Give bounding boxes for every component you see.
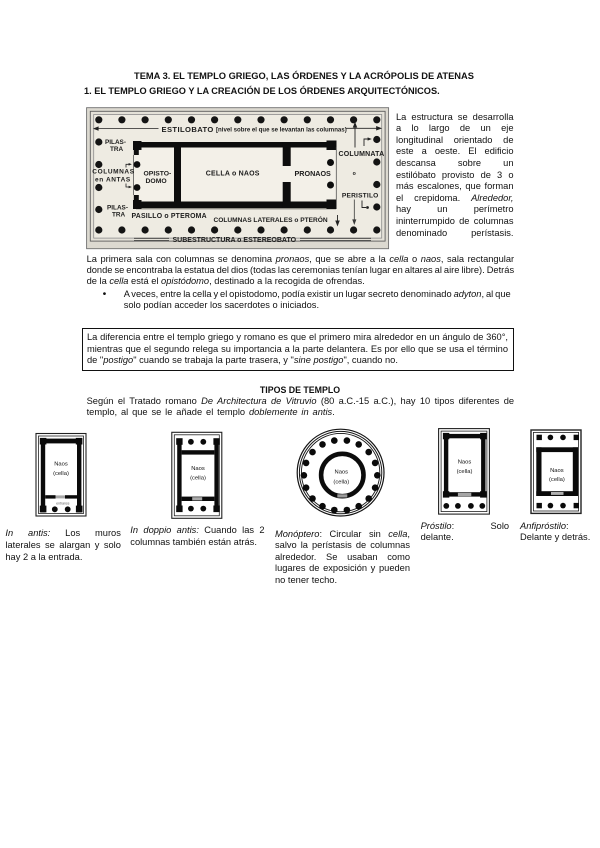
svg-text:PERISTILO: PERISTILO xyxy=(342,192,379,199)
svg-text:Naos: Naos xyxy=(458,459,472,465)
svg-text:PRONAOS: PRONAOS xyxy=(295,169,332,178)
svg-text:[nivel sobre el que se levanta: [nivel sobre el que se levantan las colu… xyxy=(216,127,347,134)
svg-text:o: o xyxy=(353,171,356,177)
svg-text:DOMO: DOMO xyxy=(146,178,167,185)
svg-text:COLUMNAS LATERALES o PTERÓN: COLUMNAS LATERALES o PTERÓN xyxy=(214,215,328,224)
svg-text:Naos: Naos xyxy=(54,462,68,468)
svg-text:SUBESTRUCTURA o ESTEREOBATO: SUBESTRUCTURA o ESTEREOBATO xyxy=(173,237,297,244)
svg-text:CELLA o NAOS: CELLA o NAOS xyxy=(206,170,260,177)
svg-text:OPISTO-: OPISTO- xyxy=(144,171,172,178)
svg-text:(cella): (cella) xyxy=(457,469,473,475)
svg-text:en ANTAS: en ANTAS xyxy=(95,177,131,184)
svg-text:TRA: TRA xyxy=(112,211,126,218)
svg-text:COLUMNAS: COLUMNAS xyxy=(92,169,134,176)
svg-text:(cella): (cella) xyxy=(333,479,349,485)
svg-text:Naos: Naos xyxy=(191,466,205,472)
svg-text:TRA: TRA xyxy=(110,146,124,153)
svg-text:ESTILOBATO: ESTILOBATO xyxy=(162,125,214,134)
svg-text:entrance: entrance xyxy=(56,501,69,505)
svg-text:Naos: Naos xyxy=(335,470,349,476)
svg-text:COLUMNATA: COLUMNATA xyxy=(339,151,385,158)
svg-text:Naos: Naos xyxy=(550,468,564,474)
svg-text:(cella): (cella) xyxy=(549,477,565,483)
svg-text:(cella): (cella) xyxy=(53,471,69,477)
svg-text:PASILLO o PTEROMA: PASILLO o PTEROMA xyxy=(132,213,207,220)
svg-text:(cella): (cella) xyxy=(190,475,206,481)
